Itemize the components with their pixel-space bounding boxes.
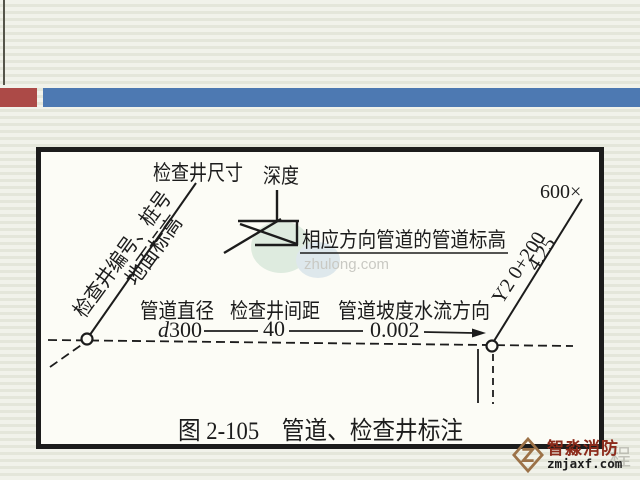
value-spacing: 40 bbox=[263, 316, 285, 341]
figure-caption: 图 2-105 管道、检查井标注 bbox=[178, 417, 463, 445]
label-depth: 深度 bbox=[263, 164, 299, 188]
left-edge-rule bbox=[3, 0, 5, 85]
value-diameter: d300 bbox=[158, 317, 202, 342]
watermark-brand: 智淼消防 bbox=[547, 440, 622, 458]
manhole-left bbox=[82, 334, 93, 345]
zmjaxf-logo-icon bbox=[512, 437, 544, 473]
label-well-size: 检查井尺寸 bbox=[153, 161, 243, 185]
pipe-manhole-annotation-figure: zhulong.com 检查井尺寸 深度 相应方向管道的管道标高 检查井编号、桩… bbox=[36, 147, 604, 449]
manhole-right bbox=[487, 341, 498, 352]
watermark-domain: zmjaxf.com bbox=[547, 457, 622, 470]
accent-blue-bar bbox=[43, 88, 640, 107]
watermark-texts: 智淼消防 zmjaxf.com bbox=[547, 440, 622, 471]
zhulong-watermark-text: zhulong.com bbox=[304, 256, 389, 273]
accent-red-block bbox=[0, 88, 37, 107]
value-slope: 0.002 bbox=[370, 317, 420, 342]
label-station-end: 600× bbox=[540, 181, 581, 203]
value-diameter-number: 300 bbox=[169, 317, 202, 342]
label-pipe-elevation: 相应方向管道的管道标高 bbox=[302, 228, 506, 252]
site-watermark: 智淼消防 zmjaxf.com bbox=[512, 437, 622, 473]
figure-frame bbox=[39, 150, 602, 447]
slide: zhulong.com 检查井尺寸 深度 相应方向管道的管道标高 检查井编号、桩… bbox=[0, 0, 640, 480]
